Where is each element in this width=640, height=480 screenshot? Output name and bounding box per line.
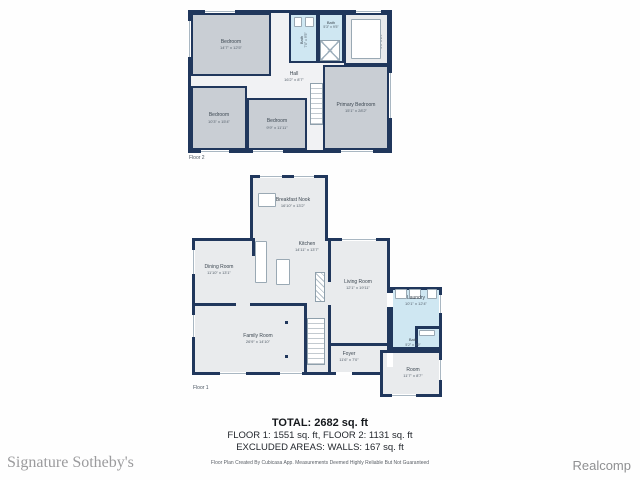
room-label: Bath 5'3" x 9'5" [323,20,338,29]
bath-tub [419,330,435,336]
window [205,10,235,13]
window [192,315,195,337]
label-foyer: Foyer 11'6" x 7'0" [319,351,379,362]
window [220,372,246,375]
room-label: Bedroom 9'9" x 11'11" [266,118,287,129]
window [253,150,283,153]
label-breakfast-nook: Breakfast Nook 16'10" x 13'2" [263,197,323,208]
window [280,372,302,375]
support-post [285,355,288,358]
floor1-tag: Floor 1 [193,385,209,391]
wall-living-foyer [328,343,390,346]
window [341,150,373,153]
floor2-bedroom-top-left: Bedroom 14'7" x 12'5" [191,13,271,76]
window [201,150,229,153]
support-post [285,321,288,324]
bath-sink [305,17,314,27]
mls-watermark: Realcomp [572,458,631,473]
room-label: Bedroom 14'7" x 12'5" [220,39,242,50]
window [356,10,381,13]
kitchen-island [276,259,290,285]
bath-toilet [294,17,302,27]
label-dining-room: Dining Room 11'10" x 13'1" [189,264,249,275]
total-area: TOTAL: 2682 sq. ft [0,417,640,430]
floor2-stairs [310,83,323,125]
floorplan-page: Bedroom 14'7" x 12'5" Bath 7'0" x 9'5" B… [0,0,640,480]
floor2-tag: Floor 2 [189,155,205,161]
floor2-plan: Bedroom 14'7" x 12'5" Bath 7'0" x 9'5" B… [188,10,392,153]
excluded-areas: EXCLUDED AREAS: WALLS: 167 sq. ft [0,442,640,454]
window [389,73,392,118]
front-door [336,372,352,375]
wall-dining-family [192,303,236,306]
brokerage-watermark: Signature Sotheby's [7,454,134,472]
window [188,21,191,57]
floor-areas: FLOOR 1: 1551 sq. ft, FLOOR 2: 1131 sq. … [0,430,640,442]
floor2-bedroom-bottom-mid: Bedroom 9'9" x 11'11" [247,98,307,150]
floor1-plan: Breakfast Nook 16'10" x 13'2" Kitchen 14… [192,175,445,397]
label-kitchen: Kitchen 14'11" x 13'7" [277,241,337,252]
room-label: Bedroom 10'3" x 15'4" [208,112,230,123]
window [342,238,376,241]
pantry-hatch [315,272,325,302]
label-bath: Bath 5'2" x 4'9" [398,337,428,348]
room-label: Primary Bedroom 15'1" x 28'2" [337,102,376,113]
window [392,394,416,397]
kitchen-counter [255,241,267,283]
window [260,175,282,178]
floor2-primary-bedroom: Primary Bedroom 15'1" x 28'2" [323,65,389,150]
label-laundry: Laundry 10'1" x 12'4" [386,295,446,306]
door-foyer-room [387,353,393,367]
window [294,175,314,178]
wic-rug [351,19,381,59]
floor2-bedroom-mid-left: Bedroom 10'3" x 15'4" [191,86,247,150]
wall-stairs-living [328,305,331,375]
label-room: Room 11'7" x 8'7" [383,367,443,378]
label-family-room: Family Room 26'9" x 14'10" [228,333,288,344]
floor2-shower-closet [320,40,340,61]
wall-dining-family-2 [250,303,306,306]
floor2-hall-label: Hall 16'2" x 8'7" [264,71,324,82]
label-living-room: Living Room 12'1" x 19'11" [328,279,388,290]
